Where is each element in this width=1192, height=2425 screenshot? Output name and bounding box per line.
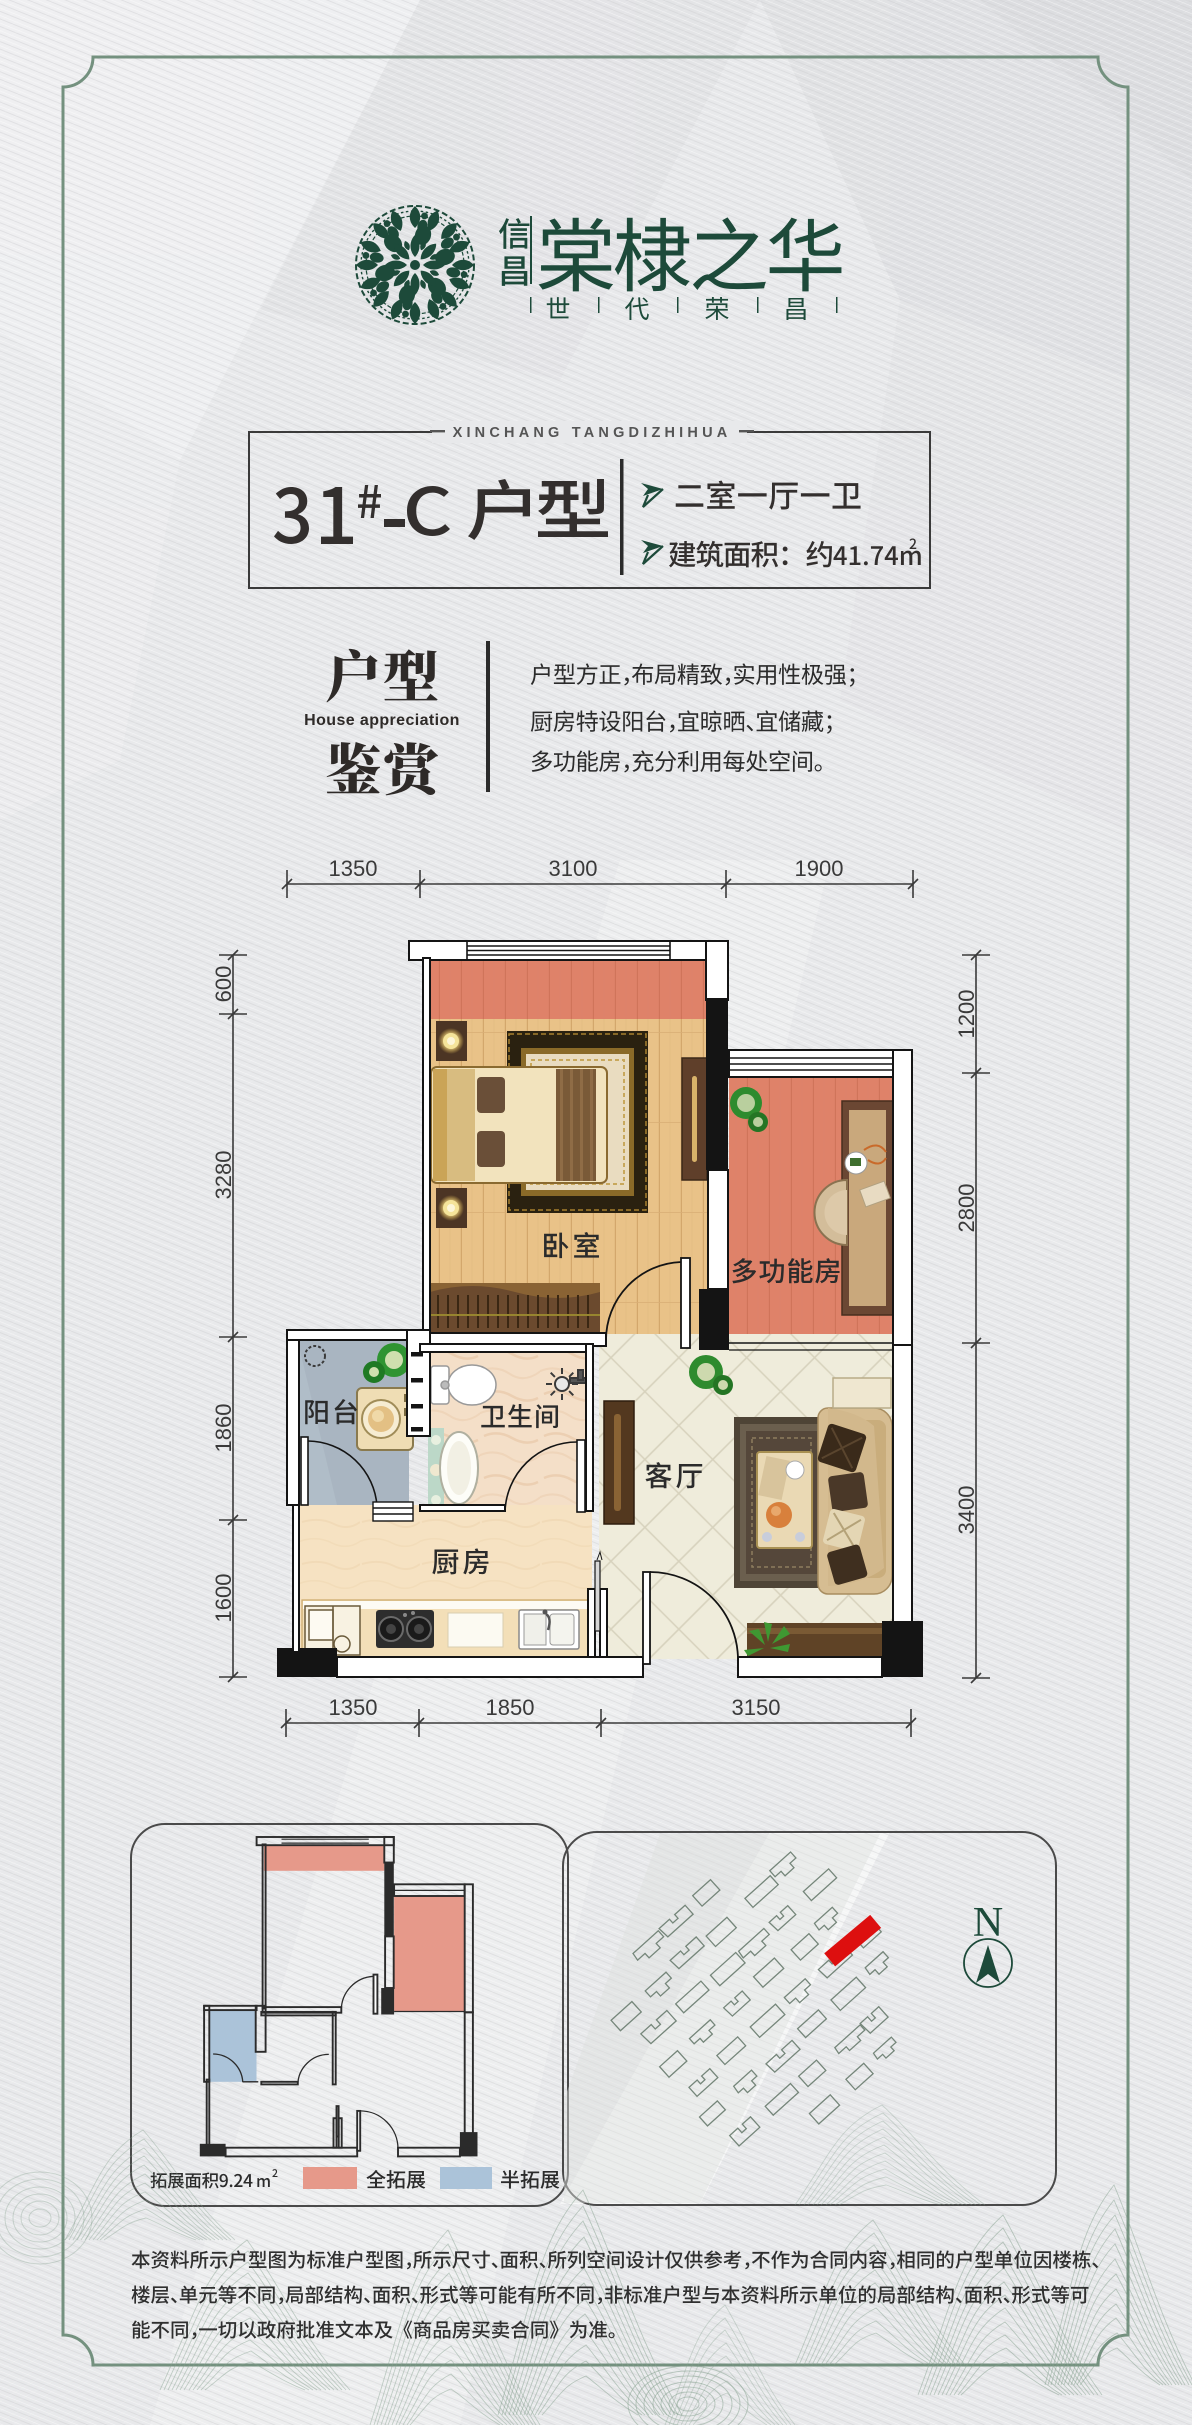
svg-text:1860: 1860 [211,1404,236,1453]
svg-text:3280: 3280 [211,1151,236,1200]
svg-text:3100: 3100 [549,856,598,881]
svg-text:XINCHANG TANGDIZHIHUA: XINCHANG TANGDIZHIHUA [453,425,732,441]
svg-text:1900: 1900 [795,856,844,881]
svg-text:3150: 3150 [732,1695,781,1720]
svg-text:1200: 1200 [954,990,979,1039]
svg-text:1600: 1600 [211,1574,236,1623]
svg-text:1350: 1350 [329,1695,378,1720]
svg-text:1850: 1850 [486,1695,535,1720]
svg-text:2800: 2800 [954,1184,979,1233]
svg-text:House appreciation: House appreciation [304,712,460,729]
svg-text:1350: 1350 [329,856,378,881]
svg-text:N: N [973,1900,1003,1946]
svg-text:3400: 3400 [954,1486,979,1535]
svg-text:600: 600 [211,966,236,1003]
